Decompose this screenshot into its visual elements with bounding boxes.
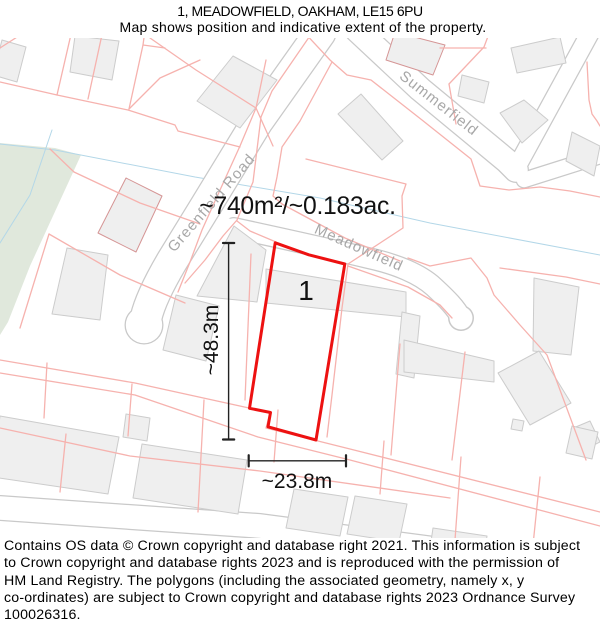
svg-text:~740m²/~0.183ac.: ~740m²/~0.183ac.: [199, 193, 395, 220]
svg-text:~48.3m: ~48.3m: [200, 305, 223, 376]
svg-text:1: 1: [298, 275, 314, 306]
svg-text:~23.8m: ~23.8m: [262, 470, 333, 493]
